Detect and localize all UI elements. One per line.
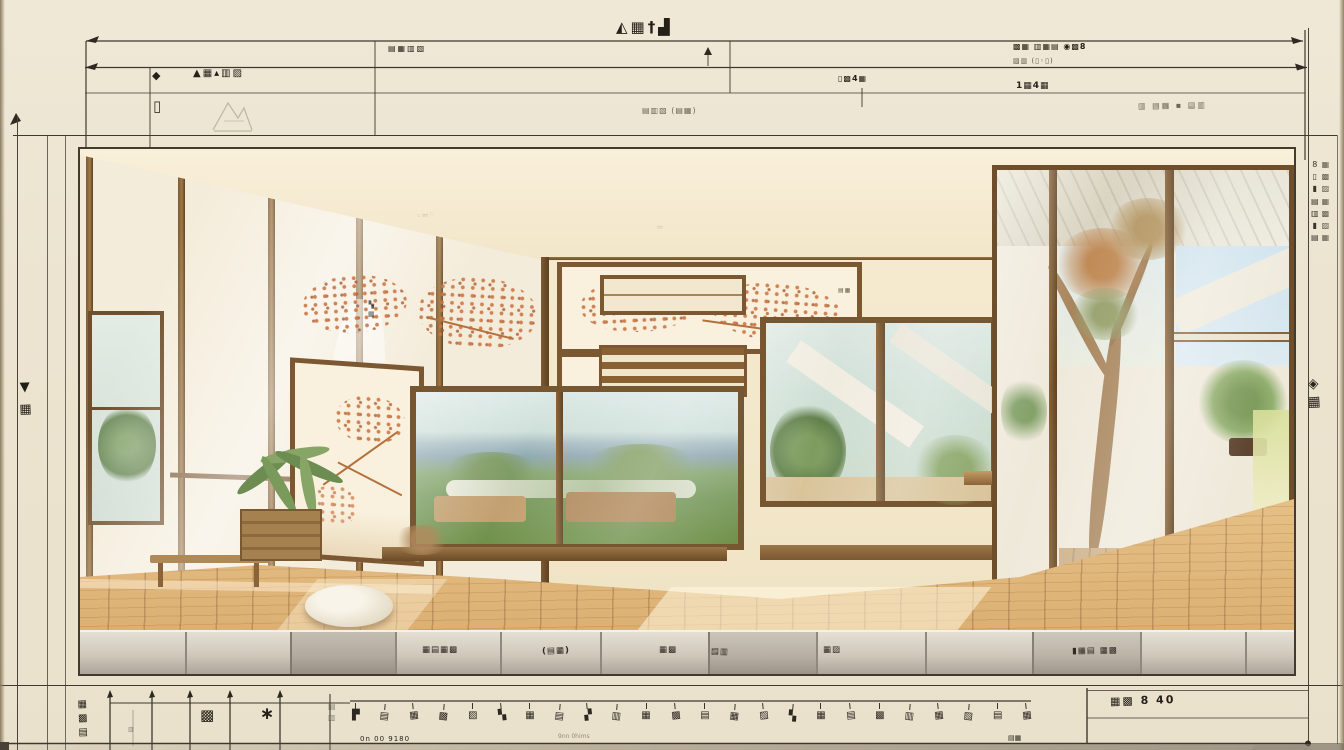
dim-label-bay: ▤▦▥▧ <box>388 44 426 53</box>
ceiling-watermark-b: ≈ <box>656 223 664 233</box>
mountain-sketch-icon <box>210 95 258 137</box>
dim-label-right-b: ▨▥ (▯◦▯) <box>1013 57 1054 65</box>
right-margin-column: 8▯▮▤▥▮▤ ▦▩▨▦▩▨▦ <box>1311 160 1329 242</box>
glyph: ▨ <box>963 704 974 723</box>
dim-label-row3-left: ▯ <box>153 97 161 115</box>
bench-leg <box>158 563 163 587</box>
right-margin-line-outer <box>1337 135 1338 744</box>
panel-seam <box>185 632 187 676</box>
sheet-number-label: ▦▩ 8 40 <box>1110 693 1176 708</box>
base-stamp: ▦▨ <box>823 645 841 655</box>
glyph: ▦ <box>729 704 740 723</box>
glyph: ▤ <box>78 727 88 739</box>
glyph: ▞ <box>583 703 593 722</box>
legend-stamp-a: ▩ <box>200 706 214 724</box>
scale-note-right: ▤▦ <box>1008 734 1021 742</box>
base-stamp: ▦▩ <box>659 645 677 655</box>
wall-stamp: ▤▦ <box>838 287 851 294</box>
floor-cushion <box>305 585 393 627</box>
glyph: ▥ <box>328 713 336 722</box>
glyph: ▤ <box>554 704 565 723</box>
glyph: ▩ <box>438 704 449 723</box>
glyph: ▥ <box>904 704 915 723</box>
right-margin-column-b: ▦▩▨▦▩▨▦ <box>1322 160 1330 242</box>
base-stamp: (▤▦) <box>542 646 570 657</box>
glyph: ▨ <box>1322 221 1330 230</box>
diamond-marker-icon: ◆ <box>152 69 160 82</box>
glass-sheen <box>766 323 991 501</box>
glyph: ▚ <box>788 704 797 723</box>
glyph: ▩ <box>670 703 681 722</box>
glyph: ▮ <box>1313 221 1317 230</box>
glyph: ▦ <box>816 703 825 721</box>
glyph: ▤ <box>993 703 1002 721</box>
base-stamp: ▤▥ <box>711 647 729 658</box>
glyph: ▼ <box>20 381 31 396</box>
glass-sheen <box>416 392 738 544</box>
glyph: ▩ <box>1322 209 1330 218</box>
dried-arrangement <box>392 525 452 555</box>
glyph: ▤ <box>700 703 709 721</box>
scale-note-mid: 9nn 0hims <box>558 733 590 740</box>
panel-seam <box>925 632 927 676</box>
panel-seam <box>600 632 602 676</box>
dim-label-right-a: ▩▦ ▥▦▤ ◉▩8 <box>1013 42 1086 51</box>
soffit-line <box>604 294 742 296</box>
glyph: ▥ <box>1311 209 1319 218</box>
glyph: ▚ <box>497 703 507 722</box>
dim-label-row3-right: ▥ ▤▦ ▪ ▤▥ <box>1138 100 1207 110</box>
dim-label-row2-mid: ▯▩4▦ <box>838 74 867 83</box>
scale-glyph-row: ▛▤▦▩▨▚▦▤▞▥▦▩▤▦▨▚▦▤▩▥▦▨▤▦ <box>352 703 1032 721</box>
left-margin-line-inner <box>47 135 48 750</box>
glyph: ▨ <box>758 703 769 722</box>
plant-frond <box>297 452 320 517</box>
glyph: ▦ <box>641 703 650 721</box>
sheet-corner-mark <box>0 742 9 750</box>
render-offset-line-left <box>65 135 66 750</box>
glyph: ▩ <box>1322 172 1330 181</box>
glyph: ▩ <box>875 703 884 721</box>
panel-seam <box>1245 632 1247 676</box>
panel-seam <box>816 632 818 676</box>
sheet-edge-bottom <box>0 744 1344 750</box>
panel-shadow <box>290 632 395 676</box>
glyph: 8 <box>1312 160 1317 169</box>
soffit-box <box>600 275 746 315</box>
glyph: ▤ <box>1311 197 1319 206</box>
glyph: ▛ <box>352 703 360 721</box>
glyph: ◈ <box>1307 376 1319 393</box>
right-window-pair <box>760 317 997 507</box>
glyph: ▤ <box>379 704 390 723</box>
window-baseboard <box>760 545 1022 560</box>
sheet-corner-blob <box>1252 745 1310 750</box>
glyph: ▦ <box>1307 394 1321 411</box>
right-margin-seal: ◈▦ <box>1306 376 1321 411</box>
base-stamp: ▦▤▦▩ <box>422 645 458 655</box>
elevation-render: ◦≈◦ ≈ ▚▦ <box>78 147 1296 676</box>
sheet-edge-left <box>0 0 5 750</box>
base-stamp: ▮▦▤ ▦▩ <box>1072 646 1118 657</box>
panel-seam <box>395 632 397 676</box>
glyph: ▦ <box>1322 160 1330 169</box>
panel-seam <box>500 632 502 676</box>
legend-hair-mark: ▥ <box>128 726 134 733</box>
glyph: ▤ <box>845 703 856 722</box>
glyph: ▨ <box>468 703 477 721</box>
dim-label-row2-right: 1▦4▦ <box>1016 81 1050 91</box>
glyph: ▦ <box>408 703 419 722</box>
dim-label-row3-mid: ▤▥▧ (▤▦) <box>642 106 697 115</box>
glyph: ▤ <box>1311 233 1319 242</box>
glyph: ▦ <box>368 310 375 318</box>
glyph: ▮ <box>1313 184 1317 193</box>
right-margin-column-a: 8▯▮▤▥▮▤ <box>1311 160 1319 242</box>
glyph: ▦ <box>77 699 87 711</box>
glyph: ▦ <box>525 703 534 721</box>
main-garden-window <box>410 386 744 550</box>
legend-stamp-b: ∗ <box>260 704 274 724</box>
glyph: ▩ <box>78 713 88 725</box>
glyph: ▥ <box>611 704 622 723</box>
panel-seam <box>1140 632 1142 676</box>
wooden-crate <box>240 509 322 561</box>
glyph: ▚ <box>369 301 374 309</box>
left-margin-label: ▼▦ <box>18 381 32 418</box>
glyph: ▨ <box>1322 184 1330 193</box>
drawing-sheet: ◭▦†▟ ▤▦▥▧ ▩▦ ▥▦▤ ◉▩8 ▨▥ (▯◦▯) ◆ ▲▦▴▥▨ ▯▩… <box>0 0 1344 750</box>
legend-stack: ▦▩▤ <box>77 699 88 739</box>
artist-seal: ▚▦ <box>368 301 375 318</box>
glyph: ▦ <box>1322 233 1330 242</box>
dim-label-row2-left: ▲▦▴▥▨ <box>193 68 244 79</box>
legend-stack-b: ▤▥ <box>328 702 336 722</box>
scale-note-left: 0n 00 9180 <box>360 735 410 743</box>
glyph: ▦ <box>1022 703 1033 722</box>
glyph: ▤ <box>328 702 336 711</box>
glyph: ▯ <box>1313 172 1317 181</box>
drawing-title: ◭▦†▟ <box>616 18 673 36</box>
glyph: ▦ <box>1322 197 1330 206</box>
base-panel-row: ▦▤▦▩ (▤▦) ▦▩ ▤▥ ▦▨ ▮▦▤ ▦▩ <box>80 630 1294 676</box>
ceiling-trim-mid <box>542 257 1004 260</box>
glyph: ▦ <box>19 403 32 418</box>
left-margin-line-outer <box>17 116 18 750</box>
glyph: ▦ <box>933 703 944 722</box>
sheet-edge-right <box>1339 0 1344 750</box>
